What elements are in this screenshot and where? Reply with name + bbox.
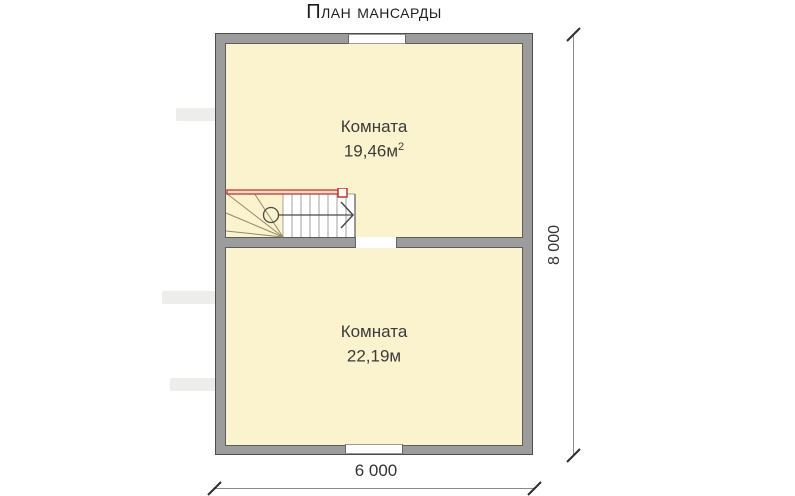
room-name: Комната bbox=[225, 321, 523, 342]
floor-plan: Комната 19,46м2 Комната 22,19м bbox=[215, 33, 533, 455]
room-name: Комната bbox=[225, 116, 523, 137]
room-lower-label: Комната 22,19м bbox=[225, 321, 523, 367]
staircase bbox=[225, 188, 356, 238]
doorway-opening bbox=[355, 237, 397, 248]
dimension-width-label: 6 000 bbox=[324, 461, 428, 481]
dimension-bottom bbox=[208, 482, 541, 495]
window-bottom bbox=[345, 444, 403, 454]
circle-icon bbox=[264, 208, 279, 223]
room-upper-label: Комната 19,46м2 bbox=[225, 116, 523, 162]
railing-post-icon bbox=[338, 188, 347, 197]
dim-tick-icon bbox=[567, 28, 580, 41]
window-top bbox=[348, 34, 406, 44]
dimension-height-label: 8 000 bbox=[546, 209, 566, 281]
stair-winder bbox=[226, 193, 283, 237]
dim-tick-icon bbox=[208, 482, 221, 495]
dim-tick-icon bbox=[567, 449, 580, 462]
floor-plan-page: План мансарды bbox=[0, 0, 795, 496]
dim-tick-icon bbox=[528, 482, 541, 495]
page-title: План мансарды bbox=[174, 1, 574, 24]
room-area: 22,19м bbox=[225, 342, 523, 367]
room-area: 19,46м2 bbox=[225, 137, 523, 162]
area-superscript: 2 bbox=[398, 141, 404, 153]
dimension-right bbox=[567, 28, 580, 462]
